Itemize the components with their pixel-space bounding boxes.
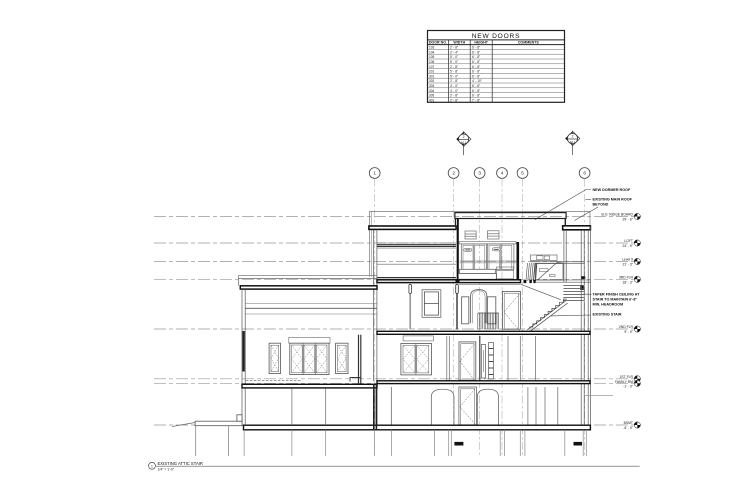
svg-text:DOOR NO.: DOOR NO. <box>429 41 447 45</box>
svg-text:1/4" = 1'-0": 1/4" = 1'-0" <box>158 467 175 471</box>
svg-text:6' - 8": 6' - 8" <box>472 94 480 98</box>
svg-text:5' - 0": 5' - 0" <box>450 55 458 59</box>
svg-text:BSMT: BSMT <box>624 421 633 425</box>
svg-text:2' - 4": 2' - 4" <box>450 50 458 54</box>
svg-text:2: 2 <box>572 135 574 139</box>
svg-text:2' - 8": 2' - 8" <box>450 98 458 102</box>
svg-text:4' - 0": 4' - 0" <box>450 84 458 88</box>
svg-text:2: 2 <box>452 171 455 176</box>
svg-text:6' - 8": 6' - 8" <box>472 70 480 74</box>
svg-text:EXISTING ATTIC STAIR: EXISTING ATTIC STAIR <box>158 461 203 466</box>
svg-text:-6' - 9": -6' - 9" <box>623 426 634 430</box>
svg-text:1: 1 <box>151 464 153 468</box>
svg-text:106: 106 <box>429 60 435 64</box>
svg-text:401: 401 <box>429 98 435 102</box>
svg-text:-1' - 0": -1' - 0" <box>623 385 634 389</box>
svg-text:6' - 8": 6' - 8" <box>472 74 480 78</box>
svg-text:304: 304 <box>429 89 435 93</box>
svg-text:NEW DORMER ROOF: NEW DORMER ROOF <box>593 188 631 192</box>
svg-text:24' - 9": 24' - 9" <box>622 244 633 248</box>
svg-text:COMMENTS: COMMENTS <box>518 41 540 45</box>
svg-text:103: 103 <box>429 46 435 50</box>
svg-text:105: 105 <box>429 55 435 59</box>
svg-text:5' - 0": 5' - 0" <box>450 60 458 64</box>
svg-text:2' - 8": 2' - 8" <box>450 65 458 69</box>
svg-text:BEYOND: BEYOND <box>593 203 609 207</box>
svg-text:5' - 0": 5' - 0" <box>450 74 458 78</box>
svg-text:21' - 3": 21' - 3" <box>622 263 633 267</box>
svg-text:4: 4 <box>501 171 504 176</box>
svg-text:4' - 0": 4' - 0" <box>450 89 458 93</box>
svg-text:Level 9: Level 9 <box>622 258 633 262</box>
svg-text:29' - 6": 29' - 6" <box>622 218 633 222</box>
svg-text:EXISTING MAIN ROOF: EXISTING MAIN ROOF <box>593 198 633 202</box>
svg-text:7' - 8": 7' - 8" <box>472 98 480 102</box>
svg-text:EXISTING STAIR: EXISTING STAIR <box>593 313 622 317</box>
svg-text:3: 3 <box>478 171 481 176</box>
svg-text:6' - 8": 6' - 8" <box>472 89 480 93</box>
svg-text:LOFT: LOFT <box>624 239 633 243</box>
svg-text:6' - 8": 6' - 8" <box>472 50 480 54</box>
svg-text:302: 302 <box>429 79 435 83</box>
svg-text:104: 104 <box>429 50 435 54</box>
svg-text:FAMILY RM: FAMILY RM <box>615 380 633 384</box>
svg-text:6' - 8": 6' - 8" <box>472 46 480 50</box>
svg-text:6: 6 <box>583 171 586 176</box>
svg-text:4' - 10": 4' - 10" <box>472 79 482 83</box>
svg-text:6' - 8": 6' - 8" <box>472 84 480 88</box>
svg-text:9' - 9": 9' - 9" <box>624 330 633 334</box>
svg-text:6' - 8": 6' - 8" <box>472 55 480 59</box>
svg-text:1: 1 <box>373 171 376 176</box>
svg-text:201: 201 <box>429 70 435 74</box>
svg-text:WIDTH: WIDTH <box>453 41 465 45</box>
svg-text:STAIR TO MAINTAIN 6'-8": STAIR TO MAINTAIN 6'-8" <box>593 297 638 301</box>
svg-text:NEW DOORS: NEW DOORS <box>472 33 521 40</box>
svg-text:6' - 8": 6' - 8" <box>472 60 480 64</box>
svg-text:1ST FLR: 1ST FLR <box>619 375 633 379</box>
svg-text:MIN. HEADROOM: MIN. HEADROOM <box>593 302 624 306</box>
svg-text:2ND FLR: 2ND FLR <box>619 325 634 329</box>
svg-text:A0.1: A0.1 <box>461 141 467 145</box>
svg-text:5: 5 <box>521 171 524 176</box>
svg-text:B.O. RIDGE BOARD: B.O. RIDGE BOARD <box>602 213 634 217</box>
svg-text:2' - 8": 2' - 8" <box>450 94 458 98</box>
svg-text:A0.1: A0.1 <box>570 140 576 144</box>
svg-text:301: 301 <box>429 74 435 78</box>
svg-text:18' - 3": 18' - 3" <box>622 280 633 284</box>
svg-text:6' - 8": 6' - 8" <box>472 65 480 69</box>
svg-text:2: 2 <box>463 135 465 139</box>
svg-text:3RD FLR: 3RD FLR <box>619 275 634 279</box>
svg-text:2' - 8": 2' - 8" <box>450 46 458 50</box>
svg-text:303: 303 <box>429 84 435 88</box>
svg-text:305: 305 <box>429 94 435 98</box>
svg-text:TAPER FINISH CEILING AT: TAPER FINISH CEILING AT <box>593 292 641 296</box>
svg-text:107: 107 <box>429 65 435 69</box>
svg-text:2' - 8": 2' - 8" <box>450 79 458 83</box>
svg-text:5' - 8": 5' - 8" <box>450 70 458 74</box>
svg-text:HEIGHT: HEIGHT <box>474 41 488 45</box>
